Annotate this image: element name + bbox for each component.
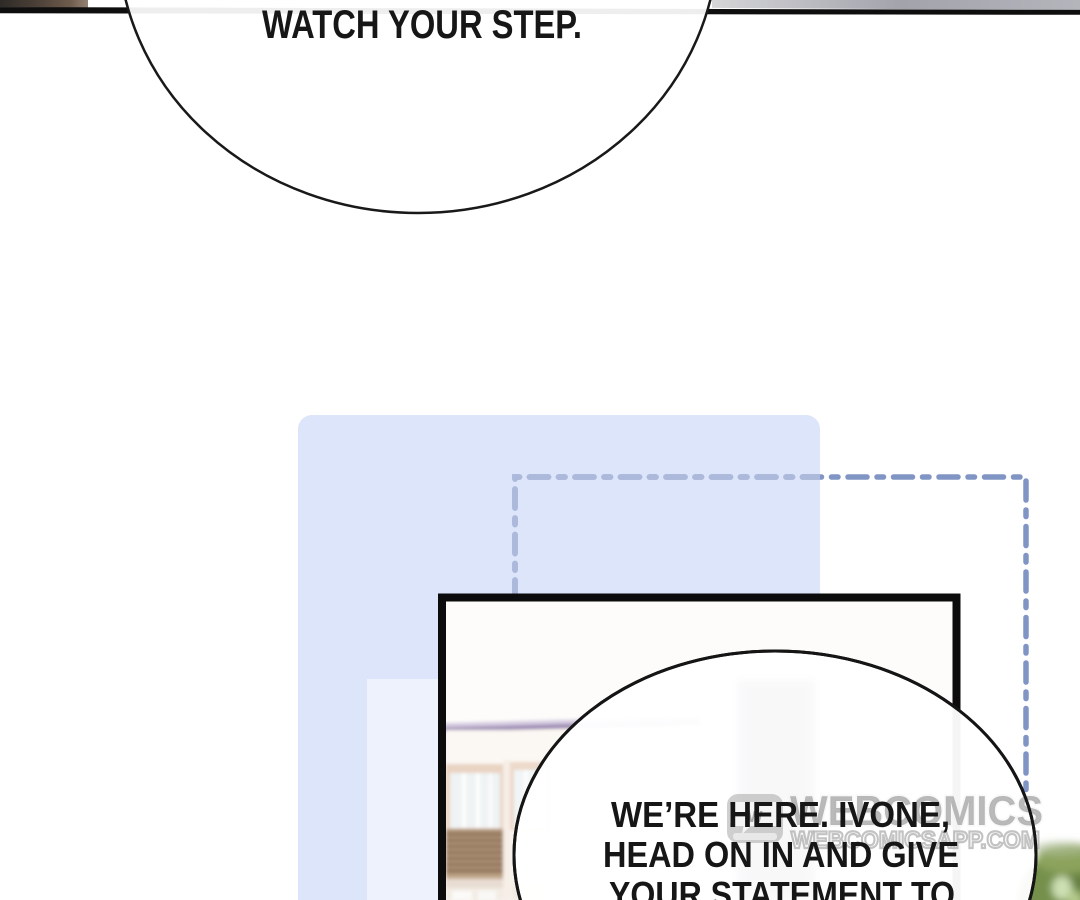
svg-text:HEAD ON IN AND GIVE: HEAD ON IN AND GIVE — [603, 834, 959, 875]
svg-text:WE’RE HERE. IVONE,: WE’RE HERE. IVONE, — [611, 794, 950, 835]
svg-text:WATCH YOUR STEP.: WATCH YOUR STEP. — [262, 3, 582, 47]
svg-text:YOUR STATEMENT TO: YOUR STATEMENT TO — [609, 874, 955, 900]
